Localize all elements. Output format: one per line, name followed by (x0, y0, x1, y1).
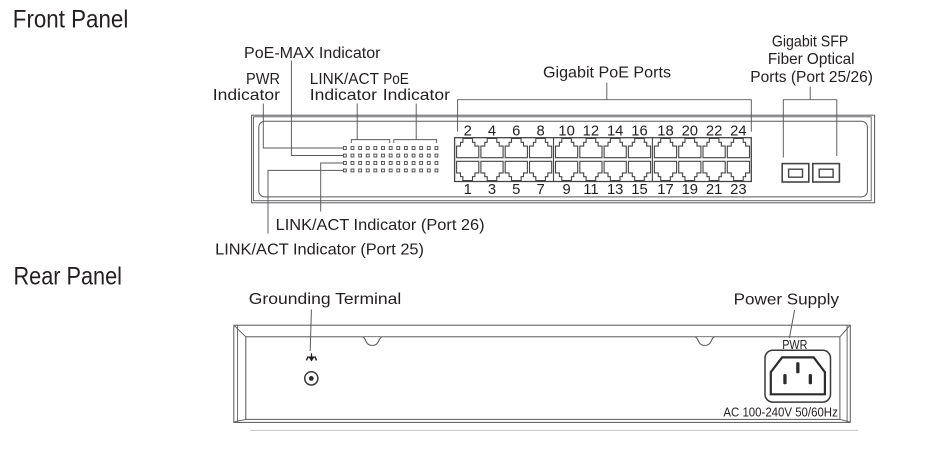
svg-text:Indicator: Indicator (213, 87, 281, 104)
svg-text:23: 23 (730, 182, 746, 198)
svg-text:10: 10 (558, 123, 574, 139)
svg-text:Fiber Optical: Fiber Optical (768, 51, 855, 68)
svg-text:Gigabit SFP: Gigabit SFP (772, 33, 849, 50)
svg-text:AC 100-240V 50/60Hz: AC 100-240V 50/60Hz (723, 405, 837, 420)
svg-text:22: 22 (706, 123, 722, 139)
svg-text:Indicator: Indicator (383, 87, 451, 104)
svg-text:4: 4 (488, 123, 496, 139)
svg-text:14: 14 (607, 123, 623, 139)
svg-text:8: 8 (536, 123, 544, 139)
svg-text:16: 16 (631, 123, 647, 139)
svg-text:LINK/ACT: LINK/ACT (310, 71, 379, 88)
svg-text:Rear Panel: Rear Panel (14, 264, 123, 291)
svg-text:12: 12 (583, 123, 599, 139)
svg-text:15: 15 (631, 182, 647, 198)
svg-text:Power Supply: Power Supply (734, 291, 839, 308)
svg-text:PoE: PoE (383, 71, 409, 88)
svg-text:PoE-MAX Indicator: PoE-MAX Indicator (244, 45, 381, 62)
svg-text:6: 6 (512, 123, 520, 139)
svg-text:PWR: PWR (782, 338, 807, 352)
svg-text:5: 5 (512, 182, 520, 198)
svg-text:PWR: PWR (246, 71, 280, 88)
svg-text:17: 17 (657, 182, 673, 198)
svg-text:1: 1 (464, 182, 472, 198)
svg-text:2: 2 (464, 123, 472, 139)
svg-text:19: 19 (682, 182, 698, 198)
svg-text:LINK/ACT Indicator (Port 25): LINK/ACT Indicator (Port 25) (215, 241, 424, 258)
svg-text:18: 18 (657, 123, 673, 139)
svg-text:LINK/ACT Indicator (Port 26): LINK/ACT Indicator (Port 26) (276, 217, 485, 234)
svg-text:7: 7 (536, 182, 544, 198)
svg-text:Indicator: Indicator (310, 87, 378, 104)
svg-text:20: 20 (682, 123, 698, 139)
svg-text:21: 21 (706, 182, 722, 198)
svg-text:Gigabit PoE Ports: Gigabit PoE Ports (543, 65, 671, 82)
svg-text:11: 11 (583, 182, 598, 198)
svg-text:13: 13 (607, 182, 623, 198)
svg-text:3: 3 (488, 182, 496, 198)
svg-text:Front Panel: Front Panel (13, 6, 129, 33)
svg-text:Ports (Port 25/26): Ports (Port 25/26) (750, 69, 873, 86)
svg-text:24: 24 (730, 123, 746, 139)
svg-text:9: 9 (562, 182, 570, 198)
svg-text:Grounding Terminal: Grounding Terminal (249, 291, 401, 308)
